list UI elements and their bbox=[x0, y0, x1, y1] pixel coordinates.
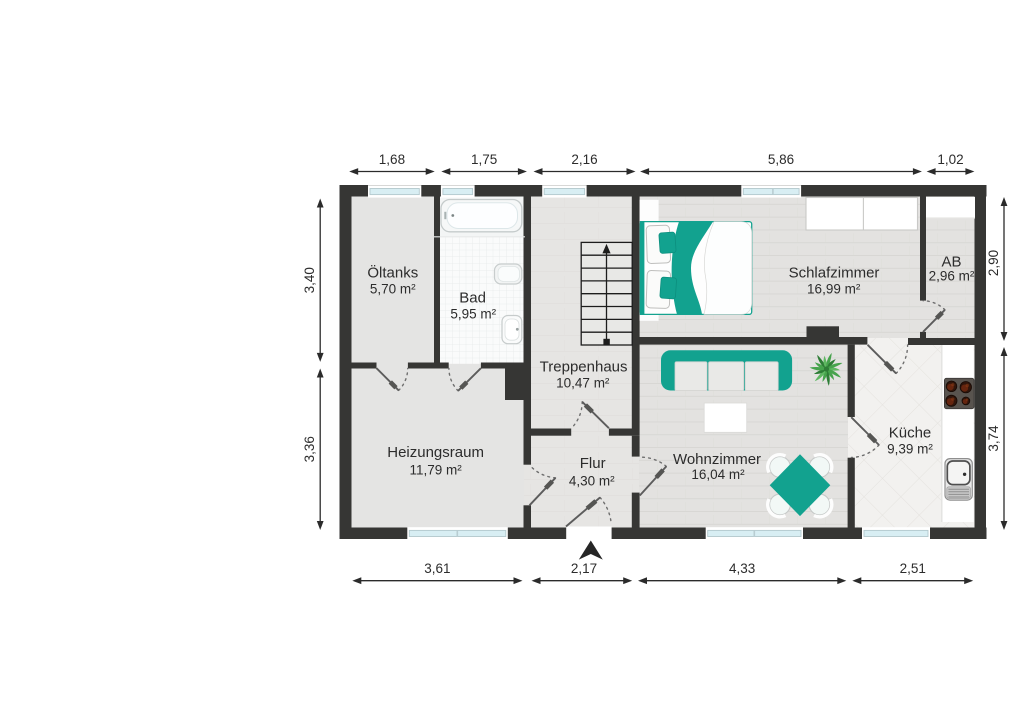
svg-text:5,95 m²: 5,95 m² bbox=[450, 307, 496, 322]
svg-text:3,40: 3,40 bbox=[302, 267, 317, 293]
svg-text:1,75: 1,75 bbox=[471, 152, 497, 167]
svg-text:1,68: 1,68 bbox=[379, 152, 405, 167]
svg-text:Bad: Bad bbox=[459, 290, 486, 307]
svg-text:10,47 m²: 10,47 m² bbox=[556, 376, 610, 391]
svg-text:2,90: 2,90 bbox=[986, 250, 1001, 276]
svg-text:2,16: 2,16 bbox=[571, 152, 597, 167]
svg-text:5,70 m²: 5,70 m² bbox=[370, 282, 416, 297]
svg-text:2,51: 2,51 bbox=[900, 561, 926, 576]
svg-text:Treppenhaus: Treppenhaus bbox=[540, 359, 628, 376]
svg-text:11,79 m²: 11,79 m² bbox=[409, 463, 462, 478]
svg-text:Schlafzimmer: Schlafzimmer bbox=[789, 265, 880, 282]
svg-text:9,39 m²: 9,39 m² bbox=[887, 441, 933, 456]
svg-text:3,61: 3,61 bbox=[424, 561, 450, 576]
svg-text:2,96 m²: 2,96 m² bbox=[929, 269, 975, 284]
svg-text:4,30 m²: 4,30 m² bbox=[569, 474, 615, 489]
svg-text:4,33: 4,33 bbox=[729, 561, 755, 576]
svg-text:3,36: 3,36 bbox=[302, 436, 317, 462]
svg-text:Küche: Küche bbox=[889, 424, 932, 441]
svg-text:3,74: 3,74 bbox=[986, 425, 1001, 452]
svg-text:Öltanks: Öltanks bbox=[367, 264, 418, 282]
svg-text:Wohnzimmer: Wohnzimmer bbox=[673, 451, 761, 468]
svg-text:2,17: 2,17 bbox=[571, 561, 597, 576]
svg-text:5,86: 5,86 bbox=[768, 152, 794, 167]
svg-text:1,02: 1,02 bbox=[937, 152, 963, 167]
svg-text:Heizungsraum: Heizungsraum bbox=[387, 444, 484, 461]
svg-text:16,04 m²: 16,04 m² bbox=[691, 467, 745, 482]
svg-text:Flur: Flur bbox=[580, 455, 606, 472]
svg-text:16,99 m²: 16,99 m² bbox=[807, 282, 861, 297]
